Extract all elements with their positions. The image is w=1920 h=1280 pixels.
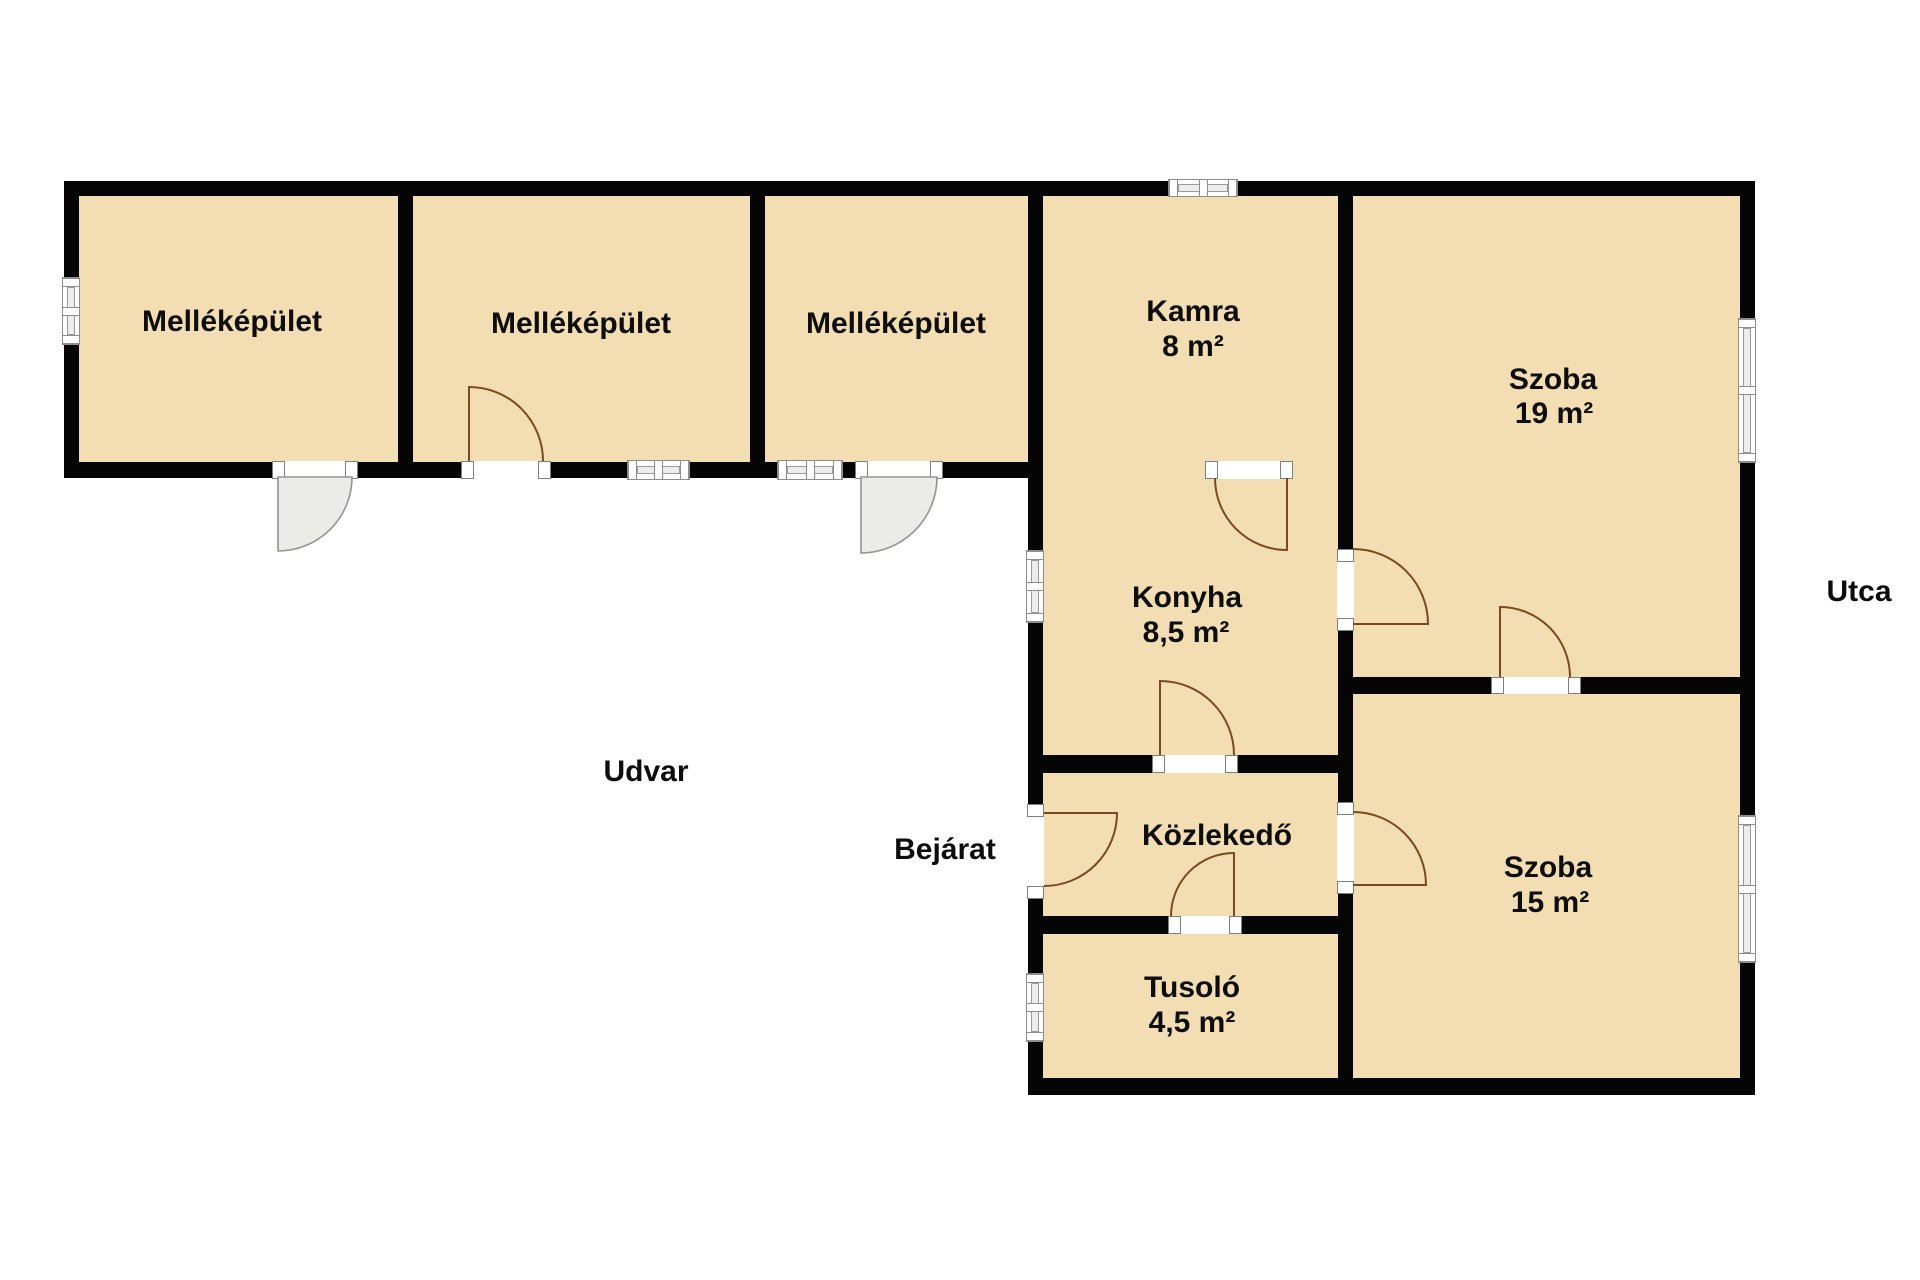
label-bejarat: Bejárat [894, 835, 996, 865]
door-swing-kozlekedo-szoba15 [1353, 812, 1426, 885]
label-szoba-19: Szoba [1509, 365, 1597, 395]
label-mellekepulet-2: Melléképület [491, 309, 671, 339]
label-tusolo: Tusoló [1144, 973, 1240, 1003]
door-swing-mellekepulet2 [469, 387, 543, 461]
label-utca: Utca [1826, 577, 1891, 607]
label-kozlekedo: Közlekedő [1142, 821, 1292, 851]
door-swing-kamra-konyha [1215, 478, 1287, 550]
label-kamra: Kamra [1146, 297, 1239, 327]
label-kamra-area: 8 m² [1162, 332, 1224, 362]
label-mellekepulet-1: Melléképület [142, 307, 322, 337]
label-mellekepulet-3: Melléképület [806, 309, 986, 339]
door-swing-mellekepulet3 [861, 477, 937, 553]
door-swing-mellekepulet1 [278, 477, 352, 551]
door-swing-kozlekedo-tusolo [1171, 853, 1234, 916]
label-szoba-15: Szoba [1504, 853, 1592, 883]
label-szoba-15-area: 15 m² [1511, 888, 1589, 918]
label-udvar: Udvar [603, 757, 688, 787]
door-swing-konyha-kozlekedo [1160, 681, 1234, 755]
label-konyha: Konyha [1132, 583, 1242, 613]
door-swing-konyha-szoba19 [1353, 549, 1428, 624]
floor-plan-canvas: MelléképületMelléképületMelléképületKamr… [0, 0, 1920, 1280]
door-swing-layer [0, 0, 1920, 1280]
door-swing-szoba19-szoba15 [1500, 607, 1570, 677]
door-swing-bejarat [1044, 813, 1117, 886]
label-tusolo-area: 4,5 m² [1149, 1008, 1236, 1038]
label-konyha-area: 8,5 m² [1143, 618, 1230, 648]
label-szoba-19-area: 19 m² [1515, 399, 1593, 429]
